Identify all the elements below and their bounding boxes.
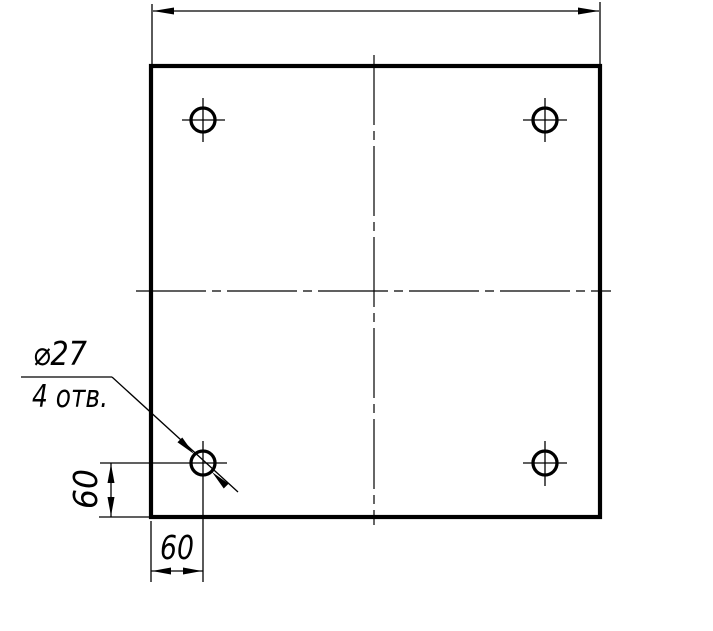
leader-arrow-icon <box>210 470 229 489</box>
horizontal-offset-dimension-text: 60 <box>160 528 194 567</box>
hole-top-right <box>523 98 567 142</box>
engineering-drawing: 60 60 ⌀27 4 отв. <box>0 0 713 631</box>
dimension-arrow-icon <box>578 8 599 15</box>
vertical-offset-dimension-text: 60 <box>66 469 105 509</box>
width-dimension <box>152 2 600 64</box>
hole-top-left <box>182 98 225 142</box>
dimension-arrow-icon <box>108 464 115 483</box>
leader-line <box>112 377 238 492</box>
dimension-arrow-icon <box>153 8 174 15</box>
leader-arrow-icon <box>177 437 196 456</box>
hole-count-label: 4 отв. <box>32 379 108 415</box>
plate-drawing-svg: 60 60 ⌀27 4 отв. <box>0 0 713 631</box>
dimension-arrow-icon <box>108 497 115 516</box>
dimension-arrow-icon <box>152 568 171 575</box>
hole-diameter-label: ⌀27 <box>33 334 87 373</box>
hole-bottom-right <box>523 441 567 486</box>
horizontal-offset-dimension: 60 <box>151 521 203 582</box>
dimension-arrow-icon <box>183 568 202 575</box>
vertical-offset-dimension: 60 <box>66 463 149 517</box>
hole-callout: ⌀27 4 отв. <box>21 334 238 492</box>
